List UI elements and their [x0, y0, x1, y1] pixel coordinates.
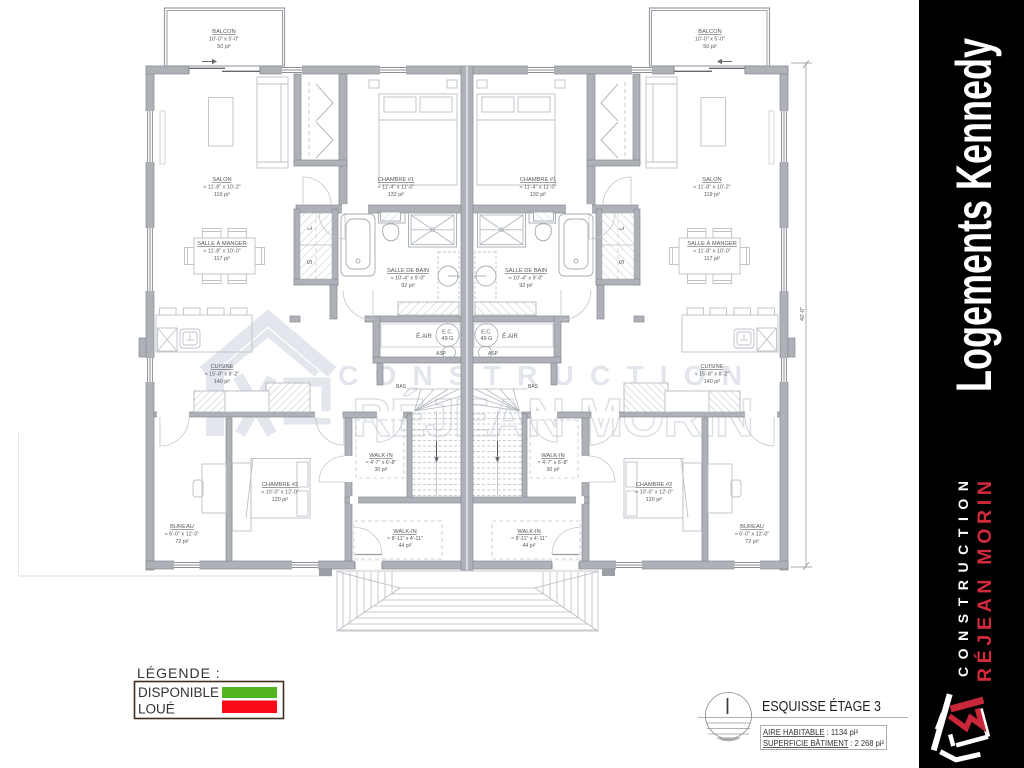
svg-text:140 pi²: 140 pi² [214, 379, 231, 385]
svg-text:CHAMBRE #1: CHAMBRE #1 [520, 177, 556, 183]
svg-text:≈ 11'-8" x 10'-2": ≈ 11'-8" x 10'-2" [693, 185, 730, 191]
svg-text:≈ 11'-8" x 10'-0": ≈ 11'-8" x 10'-0" [203, 249, 240, 255]
svg-text:72 pi²: 72 pi² [175, 539, 189, 545]
svg-text:BUREAU: BUREAU [170, 524, 194, 530]
svg-text:≈ 11'-8" x 10'-0": ≈ 11'-8" x 10'-0" [693, 249, 730, 255]
svg-text:WALK-IN: WALK-IN [541, 453, 565, 459]
svg-text:117 pi²: 117 pi² [214, 256, 230, 262]
svg-text:119 pi²: 119 pi² [704, 192, 720, 198]
svg-text:≈ 10'-4" x 9'-0": ≈ 10'-4" x 9'-0" [509, 276, 544, 282]
svg-text:42'-0": 42'-0" [800, 307, 806, 321]
svg-text:10'-0" x 5'-0": 10'-0" x 5'-0" [695, 37, 725, 43]
svg-text:49 G: 49 G [442, 336, 454, 342]
svg-text:WALK-IN: WALK-IN [517, 529, 541, 535]
svg-text:≈ 8'-11" x 4'-11": ≈ 8'-11" x 4'-11" [511, 536, 547, 542]
svg-text:≈ 10'-0" x 12'-0": ≈ 10'-0" x 12'-0" [635, 490, 673, 496]
svg-text:E.C.: E.C. [442, 330, 453, 336]
svg-text:BALCON: BALCON [698, 29, 721, 35]
svg-text:132 pi²: 132 pi² [530, 192, 547, 198]
svg-text:ESQUISSE ÉTAGE 3: ESQUISSE ÉTAGE 3 [762, 698, 881, 715]
svg-text:SALON: SALON [212, 177, 231, 183]
svg-text:S: S [307, 259, 314, 264]
svg-text:Logements Kennedy: Logements Kennedy [946, 38, 1002, 392]
svg-text:≈ 10'-0" x 12'-0": ≈ 10'-0" x 12'-0" [261, 490, 299, 496]
svg-text:L: L [619, 226, 626, 230]
svg-text:117 pi²: 117 pi² [704, 256, 720, 262]
svg-text:É.AIR: É.AIR [416, 333, 432, 340]
svg-text:≈ 4'-7" x 6'-8": ≈ 4'-7" x 6'-8" [538, 460, 569, 466]
svg-text:≈ 4'-7" x 6'-8": ≈ 4'-7" x 6'-8" [366, 460, 397, 466]
svg-text:44 pi²: 44 pi² [399, 543, 412, 549]
svg-text:CHAMBRE #2: CHAMBRE #2 [262, 482, 298, 488]
svg-text:30 pi²: 30 pi² [547, 467, 560, 473]
svg-text:BUREAU: BUREAU [740, 524, 764, 530]
svg-text:50 pi²: 50 pi² [703, 44, 717, 50]
svg-text:E.C.: E.C. [481, 330, 492, 336]
svg-text:BALCON: BALCON [212, 29, 235, 35]
svg-text:BAS: BAS [396, 384, 407, 390]
svg-text:≈ 6'-0" x 12'-0": ≈ 6'-0" x 12'-0" [165, 532, 200, 538]
svg-text:92 pi²: 92 pi² [519, 283, 533, 289]
svg-text:WALK-IN: WALK-IN [393, 529, 417, 535]
svg-text:CUISINE: CUISINE [210, 364, 233, 370]
svg-text:SALLE À MANGER: SALLE À MANGER [197, 240, 247, 247]
svg-text:LÉGENDE :: LÉGENDE : [137, 665, 221, 681]
svg-text:L: L [307, 226, 314, 230]
svg-text:50 pi²: 50 pi² [217, 44, 231, 50]
svg-text:≈ 11'-8" x 10'-2": ≈ 11'-8" x 10'-2" [203, 185, 240, 191]
svg-text:30 pi²: 30 pi² [375, 467, 388, 473]
svg-text:SALON: SALON [702, 177, 721, 183]
svg-text:119 pi²: 119 pi² [214, 192, 230, 198]
svg-text:120 pi²: 120 pi² [272, 497, 289, 503]
svg-text:72 pi²: 72 pi² [745, 539, 759, 545]
svg-text:ASP: ASP [488, 351, 499, 357]
svg-text:SUPERFICIE BÂTIMENT : 2 268 p: SUPERFICIE BÂTIMENT : 2 268 pi² [763, 739, 884, 748]
svg-text:≈ 11'-4" x 11'-0": ≈ 11'-4" x 11'-0" [520, 185, 557, 191]
svg-text:CHAMBRE #2: CHAMBRE #2 [636, 482, 672, 488]
svg-text:SALLE DE BAIN: SALLE DE BAIN [505, 268, 547, 274]
svg-text:CUISINE: CUISINE [700, 364, 723, 370]
svg-text:132 pi²: 132 pi² [388, 192, 405, 198]
svg-text:CHAMBRE #1: CHAMBRE #1 [378, 177, 414, 183]
svg-text:≈ 15'-8" x 8'-2": ≈ 15'-8" x 8'-2" [205, 372, 240, 378]
svg-text:120 pi²: 120 pi² [646, 497, 663, 503]
svg-text:44 pi²: 44 pi² [523, 543, 536, 549]
svg-text:LOUÉ: LOUÉ [138, 702, 175, 717]
svg-text:AIRE HABITABLE : 1134 pi²: AIRE HABITABLE : 1134 pi² [763, 728, 858, 737]
svg-text:10'-0" x 5'-0": 10'-0" x 5'-0" [209, 37, 239, 43]
svg-text:≈ 8'-11" x 4'-11": ≈ 8'-11" x 4'-11" [387, 536, 423, 542]
svg-text:≈ 6'-0" x 12'-0": ≈ 6'-0" x 12'-0" [735, 532, 770, 538]
svg-text:92 pi²: 92 pi² [401, 283, 415, 289]
svg-text:49 G: 49 G [481, 336, 493, 342]
svg-text:SALLE À MANGER: SALLE À MANGER [687, 240, 737, 247]
svg-text:É.AIR: É.AIR [502, 333, 518, 340]
svg-text:140 pi²: 140 pi² [704, 379, 721, 385]
svg-text:DISPONIBLE: DISPONIBLE [138, 685, 219, 700]
svg-text:SALLE DE BAIN: SALLE DE BAIN [387, 268, 429, 274]
svg-text:BAS: BAS [528, 384, 539, 390]
svg-text:ASP: ASP [436, 351, 447, 357]
svg-text:≈ 11'-4" x 11'-0": ≈ 11'-4" x 11'-0" [378, 185, 415, 191]
svg-text:≈ 15'-8" x 8'-2": ≈ 15'-8" x 8'-2" [695, 372, 730, 378]
svg-text:WALK-IN: WALK-IN [369, 453, 393, 459]
svg-text:≈ 10'-4" x 9'-0": ≈ 10'-4" x 9'-0" [391, 276, 426, 282]
svg-text:RÉJEAN MORIN: RÉJEAN MORIN [973, 481, 996, 682]
svg-text:S: S [619, 259, 626, 264]
